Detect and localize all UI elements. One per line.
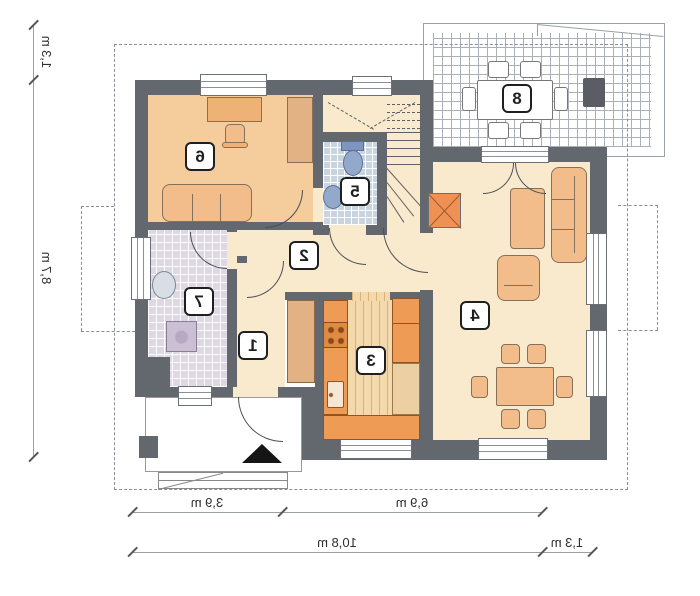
dimension-label-bottom-side: 1,3 m xyxy=(527,535,607,551)
roof-bump-left-top xyxy=(81,206,114,207)
floor-plan-canvas: 1 2 3 4 5 6 7 8 1,3 m 8,7 m 3,9 m 6,9 m … xyxy=(0,0,700,596)
dimension-line-left xyxy=(33,25,34,457)
room-label-7: 7 xyxy=(184,287,214,316)
room-label-8: 8 xyxy=(502,84,532,113)
room-label-5: 5 xyxy=(340,177,370,206)
roof-bump-right-top xyxy=(618,205,658,206)
room-label-2: 2 xyxy=(289,241,319,270)
roof-bump-right-vertical xyxy=(657,205,658,330)
dimension-label-left-upper: 1,3 m xyxy=(38,22,54,82)
room-label-1: 1 xyxy=(238,331,268,360)
room-label-4: 4 xyxy=(460,301,490,330)
roof-outline-dashed xyxy=(114,44,628,490)
dimension-label-bottom-total: 10,8 m xyxy=(297,535,377,551)
dimension-line-bottom-total xyxy=(132,552,592,553)
room-label-6: 6 xyxy=(185,142,215,171)
roof-bump-right-bottom xyxy=(618,330,658,331)
dimension-label-left-main: 8,7 m xyxy=(38,238,54,298)
roof-bump-left-vertical xyxy=(81,206,82,331)
dimension-line-bottom-segments xyxy=(132,512,542,513)
room-label-3: 3 xyxy=(356,346,386,375)
dimension-label-bottom-right-seg: 6,9 m xyxy=(372,495,452,511)
dimension-label-bottom-left: 3,9 m xyxy=(167,495,247,511)
roof-bump-left-bottom xyxy=(81,331,135,332)
